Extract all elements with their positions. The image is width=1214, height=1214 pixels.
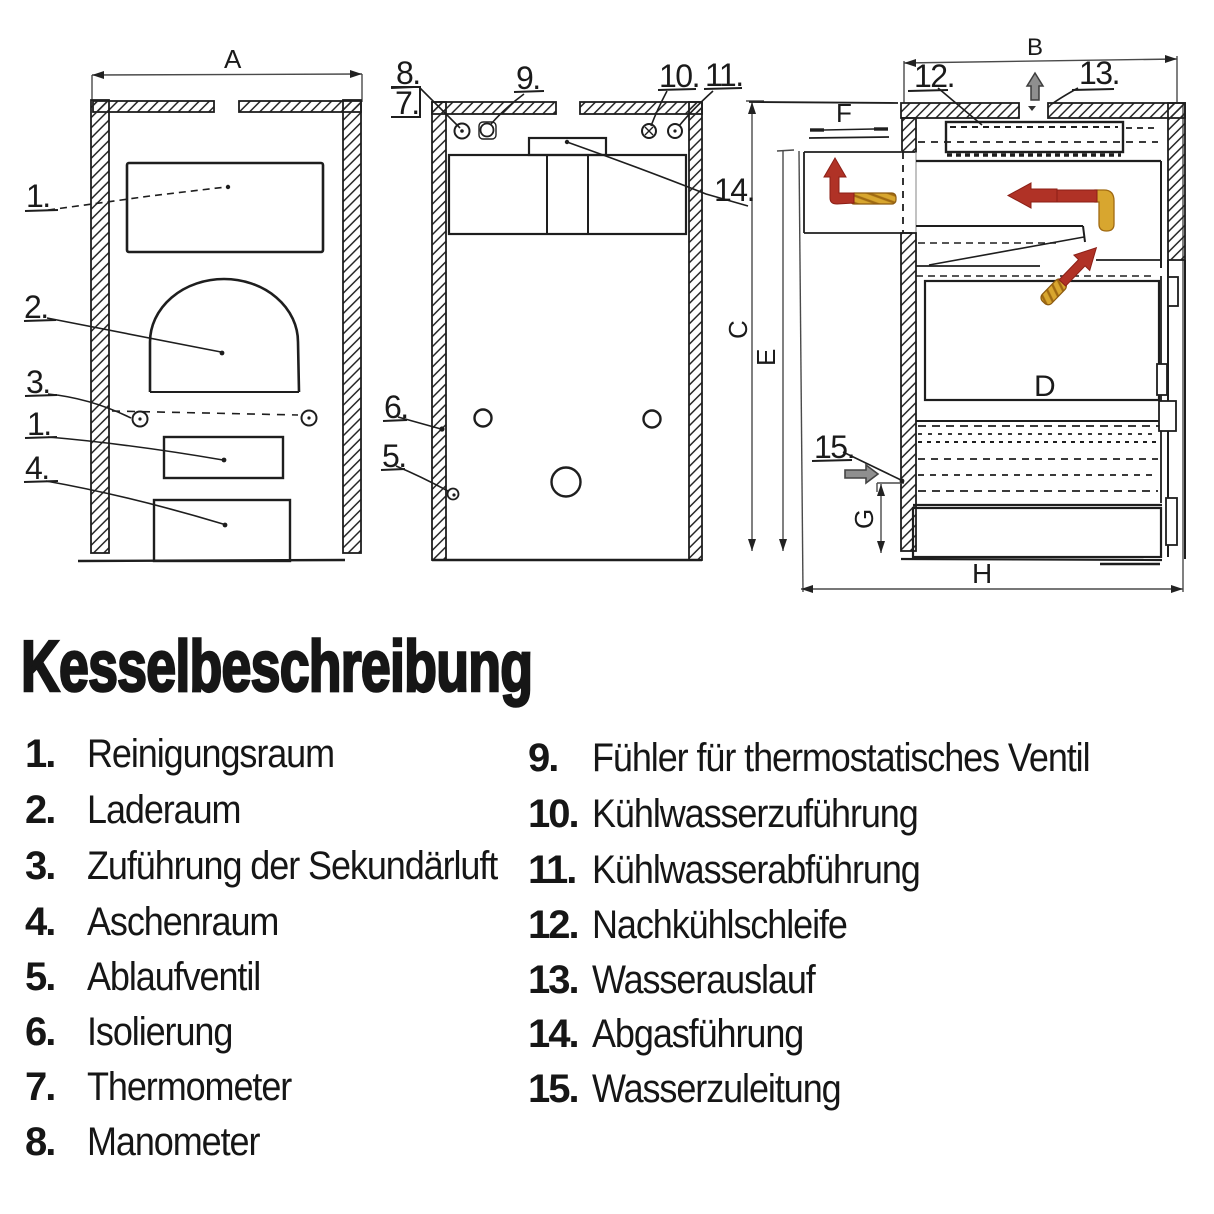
svg-text:13.: 13. <box>1079 55 1119 91</box>
svg-text:7.: 7. <box>395 85 419 121</box>
svg-text:15.: 15. <box>814 429 854 465</box>
svg-text:2.: 2. <box>24 289 48 325</box>
svg-text:B: B <box>1027 34 1042 61</box>
svg-text:1.: 1. <box>26 178 50 214</box>
svg-text:F: F <box>836 98 851 128</box>
svg-text:12.: 12. <box>914 58 954 94</box>
svg-text:4.: 4. <box>25 450 49 486</box>
svg-text:H: H <box>972 558 991 589</box>
svg-text:10.: 10. <box>659 58 699 94</box>
svg-text:14.: 14. <box>714 172 754 208</box>
svg-text:D: D <box>1034 370 1055 403</box>
svg-text:11.: 11. <box>705 57 743 93</box>
svg-text:3.: 3. <box>26 364 50 400</box>
svg-text:A: A <box>224 44 242 74</box>
svg-text:5.: 5. <box>382 438 406 474</box>
svg-text:C: C <box>723 321 753 339</box>
svg-text:1.: 1. <box>27 406 51 442</box>
svg-text:6.: 6. <box>384 389 408 425</box>
svg-text:9.: 9. <box>516 60 540 96</box>
svg-text:G: G <box>849 510 879 529</box>
svg-text:E: E <box>751 349 781 366</box>
